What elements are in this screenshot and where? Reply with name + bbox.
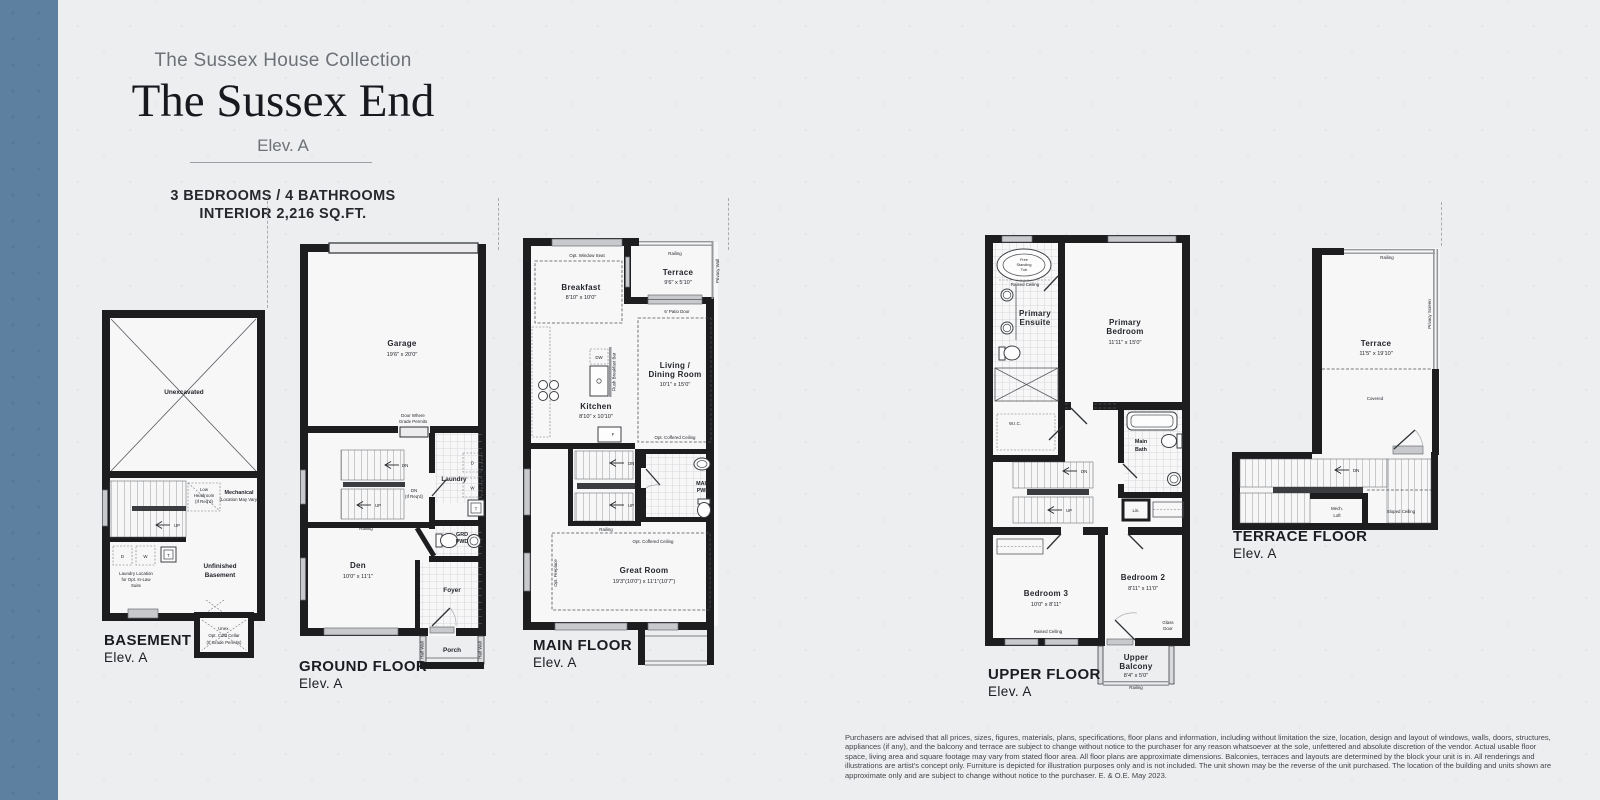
svg-text:F: F xyxy=(612,432,615,437)
ground-label: GROUND FLOOR Elev. A xyxy=(299,658,427,691)
svg-text:Railing: Railing xyxy=(1380,255,1394,260)
svg-text:DW: DW xyxy=(595,355,603,360)
svg-text:Unex.: Unex. xyxy=(218,626,229,631)
lot-line xyxy=(267,196,268,308)
svg-text:Raised Ceiling: Raised Ceiling xyxy=(1011,282,1040,287)
svg-text:Suite: Suite xyxy=(131,583,142,588)
svg-text:Upper: Upper xyxy=(1124,653,1149,662)
kitchen-wall xyxy=(523,443,635,449)
svg-text:Mech.: Mech. xyxy=(1331,506,1343,511)
upper-label: UPPER FLOOR Elev. A xyxy=(988,666,1101,699)
upper-elev: Elev. A xyxy=(988,684,1101,699)
svg-text:UP: UP xyxy=(1066,508,1072,513)
ground-elev: Elev. A xyxy=(299,676,427,691)
svg-text:for Opt. In-Law: for Opt. In-Law xyxy=(121,577,151,582)
svg-text:Breakfast: Breakfast xyxy=(561,283,600,292)
lot-line xyxy=(728,198,729,250)
svg-text:Opt. Uppers: Opt. Uppers xyxy=(481,462,486,486)
svg-text:Free: Free xyxy=(1020,258,1028,262)
svg-text:Door Where: Door Where xyxy=(401,413,425,418)
svg-text:Raised Ceiling: Raised Ceiling xyxy=(1034,629,1063,634)
svg-text:Great Room: Great Room xyxy=(620,566,669,575)
svg-text:T: T xyxy=(167,553,170,558)
svg-text:T: T xyxy=(475,507,478,512)
svg-text:10'1" x 15'0": 10'1" x 15'0" xyxy=(660,382,691,388)
svg-text:Opt. Window Seat: Opt. Window Seat xyxy=(569,253,605,258)
specs-interior: INTERIOR 2,216 SQ.FT. xyxy=(199,206,366,222)
svg-text:GRD: GRD xyxy=(456,532,468,538)
svg-text:Opt. Cold Cellar: Opt. Cold Cellar xyxy=(208,633,240,638)
collection-subtitle: The Sussex House Collection xyxy=(154,50,411,72)
primary-ensuite: Free Standing Tub Raised Ceiling Primary… xyxy=(993,243,1058,402)
svg-text:8'10" x 10'0": 8'10" x 10'0" xyxy=(566,295,597,301)
svg-text:UP: UP xyxy=(375,503,381,508)
svg-text:Opt. Coffered Ceiling: Opt. Coffered Ceiling xyxy=(633,539,674,544)
svg-text:(If Grade Permits): (If Grade Permits) xyxy=(207,640,242,645)
basement-window xyxy=(103,490,108,526)
upper-title: UPPER FLOOR xyxy=(988,666,1101,683)
svg-text:PWD: PWD xyxy=(697,488,710,494)
svg-text:W.I.C.: W.I.C. xyxy=(1009,421,1021,426)
up-label: UP xyxy=(174,523,180,528)
basement-floorplan: Unexcavated UP Low Headroom (If Req'd) M… xyxy=(98,300,268,662)
porch: Porch Half Wall Half Wall xyxy=(420,636,485,669)
svg-text:Porch: Porch xyxy=(443,647,461,654)
svg-text:9'6" x 5'10": 9'6" x 5'10" xyxy=(664,280,692,286)
elevation-label: Elev. A xyxy=(257,136,309,156)
svg-text:Living /: Living / xyxy=(660,361,691,370)
upper-balcony: Upper Balcony 8'4" x 5'0" Railing xyxy=(1098,646,1174,690)
svg-text:Standing: Standing xyxy=(1017,263,1032,267)
svg-text:Privacy Wall: Privacy Wall xyxy=(715,259,720,283)
svg-text:Glass: Glass xyxy=(1162,620,1174,625)
svg-text:Primary: Primary xyxy=(1109,318,1141,327)
garage-wall xyxy=(304,426,482,433)
svg-text:MAIN: MAIN xyxy=(696,481,710,487)
svg-text:Door: Door xyxy=(1163,626,1173,631)
svg-text:Covered: Covered xyxy=(1367,396,1384,401)
svg-text:Bedroom: Bedroom xyxy=(1106,327,1143,336)
svg-text:Headroom: Headroom xyxy=(194,493,215,498)
svg-text:8'4" x 5'0": 8'4" x 5'0" xyxy=(1124,673,1148,679)
basement-label: BASEMENT Elev. A xyxy=(104,632,191,665)
svg-text:DN: DN xyxy=(628,461,634,466)
svg-text:Mechanical: Mechanical xyxy=(224,490,254,496)
svg-text:Sloped Ceiling: Sloped Ceiling xyxy=(1387,509,1416,514)
main-title: MAIN FLOOR xyxy=(533,637,632,654)
svg-text:Half Wall: Half Wall xyxy=(420,641,425,658)
svg-text:Railing: Railing xyxy=(668,251,682,256)
terrace-floorplan: Railing Privacy Screen Terrace 11'5" x 1… xyxy=(1200,242,1445,544)
ground-floorplan: Garage 19'6" x 20'0" Door Where Grade Pe… xyxy=(296,238,501,700)
svg-text:Grade Permits: Grade Permits xyxy=(399,419,428,424)
svg-text:Lin.: Lin. xyxy=(1132,508,1139,513)
svg-text:Bath: Bath xyxy=(1135,447,1147,453)
svg-text:Privacy Screen: Privacy Screen xyxy=(1427,299,1432,329)
svg-text:Terrace: Terrace xyxy=(1361,339,1392,348)
svg-text:Balcony: Balcony xyxy=(1119,662,1152,671)
svg-text:DN: DN xyxy=(411,488,417,493)
ground-powder-room: GRD PWD xyxy=(429,526,482,562)
main-elev: Elev. A xyxy=(533,655,632,670)
svg-text:DN: DN xyxy=(1353,468,1359,473)
lot-line xyxy=(1441,202,1442,246)
svg-text:(If Req'd): (If Req'd) xyxy=(195,499,213,504)
svg-text:Unfinished: Unfinished xyxy=(203,563,236,570)
upper-floorplan: Free Standing Tub Raised Ceiling Primary… xyxy=(953,228,1198,710)
svg-text:(If Req'd): (If Req'd) xyxy=(405,494,423,499)
svg-text:Opt. Fireplace: Opt. Fireplace xyxy=(553,559,558,587)
bedroom-window xyxy=(1108,236,1176,242)
ensuite-window xyxy=(1002,236,1032,242)
svg-text:8'10" x 10'10": 8'10" x 10'10" xyxy=(579,414,613,420)
svg-text:Bedroom 3: Bedroom 3 xyxy=(1024,589,1069,598)
svg-text:6' Patio Door: 6' Patio Door xyxy=(664,309,690,314)
svg-text:11'5" x 19'10": 11'5" x 19'10" xyxy=(1359,351,1392,357)
garage-door xyxy=(329,243,478,253)
svg-text:Loft: Loft xyxy=(1333,513,1341,518)
svg-text:19'6" x 20'0": 19'6" x 20'0" xyxy=(387,352,418,358)
svg-text:D: D xyxy=(121,554,124,559)
svg-text:Main: Main xyxy=(1135,439,1147,445)
basement-door xyxy=(128,609,158,618)
specs-bedrooms: 3 BEDROOMS / 4 BATHROOMS xyxy=(170,188,395,204)
svg-text:Den: Den xyxy=(350,561,366,570)
terrace-elev: Elev. A xyxy=(1233,546,1367,561)
svg-text:Bedroom 2: Bedroom 2 xyxy=(1121,573,1166,582)
main-floorplan: Railing Terrace 9'6" x 5'10" Privacy Wal… xyxy=(518,233,723,675)
svg-text:Ensuite: Ensuite xyxy=(1020,318,1051,327)
terrace-title: TERRACE FLOOR xyxy=(1233,528,1367,545)
svg-text:Railing: Railing xyxy=(1129,685,1143,690)
basement-stairs: UP xyxy=(110,481,186,537)
svg-text:DN: DN xyxy=(1081,469,1087,474)
svg-text:D: D xyxy=(471,461,474,466)
disclaimer-text: Purchasers are advised that all prices, … xyxy=(845,733,1559,780)
header-divider xyxy=(190,162,372,163)
svg-text:Railing: Railing xyxy=(599,527,613,532)
stair-window xyxy=(301,470,306,504)
svg-text:10'0" x 11'1": 10'0" x 11'1" xyxy=(343,574,373,580)
svg-text:Half Wall: Half Wall xyxy=(478,641,483,658)
svg-text:Low: Low xyxy=(200,487,209,492)
svg-text:UP: UP xyxy=(628,503,634,508)
svg-text:(Location May Vary): (Location May Vary) xyxy=(220,497,259,502)
svg-text:Primary: Primary xyxy=(1019,309,1051,318)
svg-text:Kitchen: Kitchen xyxy=(580,402,611,411)
svg-text:Flush Breakfast Bar: Flush Breakfast Bar xyxy=(612,352,617,391)
svg-text:Terrace: Terrace xyxy=(663,268,694,277)
svg-text:10'0" x 8'11": 10'0" x 8'11" xyxy=(1031,602,1061,608)
svg-text:DN: DN xyxy=(402,463,408,468)
page-background: The Sussex House Collection The Sussex E… xyxy=(0,0,1600,800)
svg-text:Opt. Coffered Ceiling: Opt. Coffered Ceiling xyxy=(655,435,696,440)
main-label: MAIN FLOOR Elev. A xyxy=(533,637,632,670)
svg-text:11'11" x 15'0": 11'11" x 15'0" xyxy=(1109,340,1142,346)
svg-text:19'3"(10'0") x 11'1"(10'7"): 19'3"(10'0") x 11'1"(10'7") xyxy=(613,579,676,585)
svg-text:8'11" x 11'0": 8'11" x 11'0" xyxy=(1128,586,1158,592)
ground-title: GROUND FLOOR xyxy=(299,658,427,675)
svg-text:PWD: PWD xyxy=(456,539,469,545)
basement-elev: Elev. A xyxy=(104,650,191,665)
basement-title: BASEMENT xyxy=(104,632,191,649)
main-bath: Main Bath xyxy=(1118,410,1182,492)
left-accent-strip xyxy=(0,0,58,800)
svg-text:Foyer: Foyer xyxy=(443,587,461,594)
page-title: The Sussex End xyxy=(132,74,435,128)
terrace-label: TERRACE FLOOR Elev. A xyxy=(1233,528,1367,561)
svg-text:Dining Room: Dining Room xyxy=(648,370,701,379)
main-powder-room: MAIN PWD xyxy=(641,449,714,522)
svg-text:Laundry Location: Laundry Location xyxy=(119,571,153,576)
svg-text:Tub: Tub xyxy=(1021,268,1027,272)
svg-text:Garage: Garage xyxy=(387,339,417,348)
unexcavated-label: Unexcavated xyxy=(164,389,204,396)
svg-text:Basement: Basement xyxy=(205,572,236,579)
